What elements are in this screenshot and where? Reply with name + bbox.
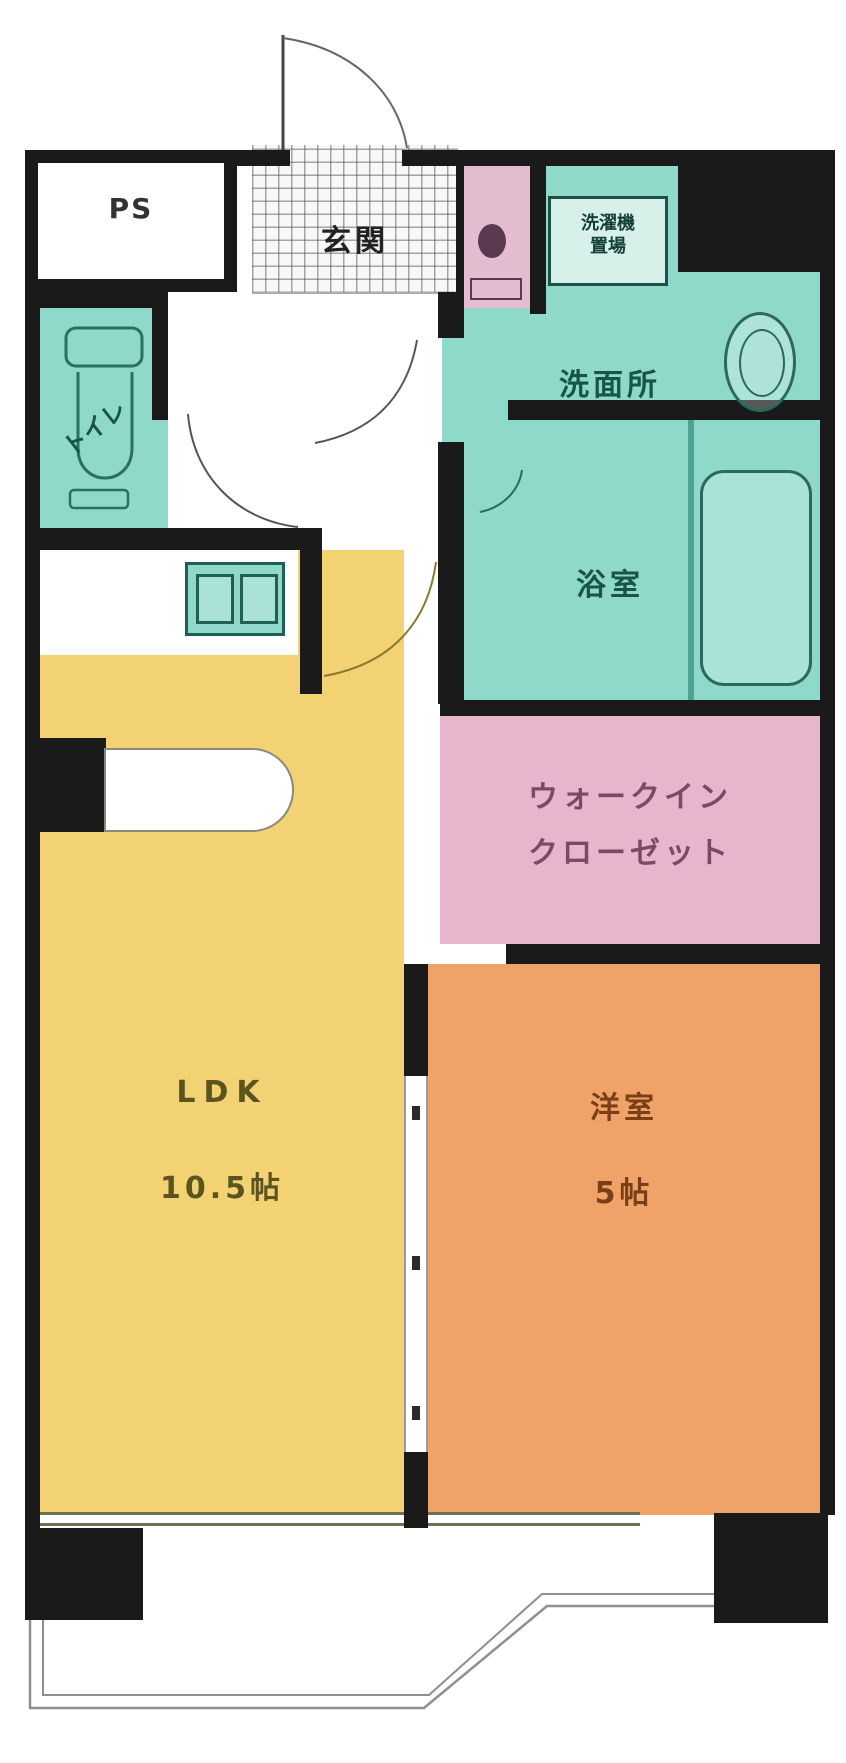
genkan-label: 玄関: [252, 216, 458, 260]
room-ldk: [40, 550, 404, 1515]
entry-fixture-oval: [478, 224, 506, 258]
window-bedroom-south: [428, 1512, 640, 1526]
wall-closet-top: [440, 700, 835, 716]
door-track-tick: [412, 1256, 420, 1270]
washroom-door-arc: [315, 340, 417, 443]
bathtub: [700, 470, 812, 686]
kitchen-pillar: [32, 738, 106, 832]
washing-machine-label-line1: 洗濯機: [551, 213, 665, 236]
wall-toilet-right: [152, 308, 168, 420]
wall-left: [25, 150, 40, 1530]
shoe-cabinet: [470, 278, 522, 300]
wall-top-right: [402, 150, 835, 166]
bedroom-size-label: 5帖: [428, 1168, 820, 1212]
washing-machine-space: 洗濯機 置場: [548, 196, 668, 286]
stove-burner-right: [240, 574, 278, 624]
door-track-tick: [412, 1406, 420, 1420]
kitchen-counter: [104, 748, 294, 832]
bathroom-label: 浴室: [520, 560, 700, 604]
ldk-size-label: 10.5帖: [40, 1163, 404, 1207]
stove-burner-left: [196, 574, 234, 624]
washing-machine-label-line2: 置場: [551, 236, 665, 259]
balcony-rail-outer: [30, 1606, 714, 1708]
wall-entrystrip-right: [530, 166, 546, 314]
wall-divider-bottom-stub: [404, 1452, 428, 1515]
pillar-top-right: [678, 166, 835, 272]
ldk-bedroom-sliding-door: [404, 1076, 428, 1452]
floorplan-canvas: 洗濯機 置場 PS 玄関 洗面所 浴室 トイレ ウォークイン クローゼット LD…: [0, 0, 846, 1763]
toilet-door-arc: [188, 414, 298, 527]
wall-hall-upper-stub: [438, 292, 464, 338]
closet-label-line2: クローゼット: [440, 828, 820, 872]
wall-right: [820, 166, 835, 1515]
window-ldk-south: [40, 1512, 404, 1526]
wall-divider-top-stub: [404, 964, 428, 1076]
wall-ldk-stub: [300, 528, 322, 694]
kitchen-stove: [185, 562, 285, 636]
pier-bottom-center: [404, 1510, 428, 1528]
block-bottom-right: [714, 1513, 828, 1623]
washbasin: [724, 312, 796, 412]
wall-toilet-top: [25, 292, 168, 308]
entry-side-strip: [464, 166, 530, 308]
block-bottom-left: [25, 1528, 143, 1620]
ps-label: PS: [25, 192, 237, 225]
genkan-step-line: [252, 292, 438, 294]
washroom-label: 洗面所: [500, 360, 720, 404]
entrance-door-arc: [283, 38, 407, 148]
door-track-tick: [412, 1106, 420, 1120]
washbasin-bowl: [739, 329, 785, 397]
room-bedroom: [428, 964, 820, 1515]
bedroom-label: 洋室: [428, 1083, 820, 1127]
wall-hall-lower: [438, 442, 464, 704]
balcony-rail-inner: [43, 1594, 714, 1695]
ldk-label: LDK: [40, 1075, 404, 1110]
closet-label-line1: ウォークイン: [440, 772, 820, 816]
wall-ldk-top: [25, 528, 322, 550]
wall-closet-bottom: [506, 944, 835, 964]
